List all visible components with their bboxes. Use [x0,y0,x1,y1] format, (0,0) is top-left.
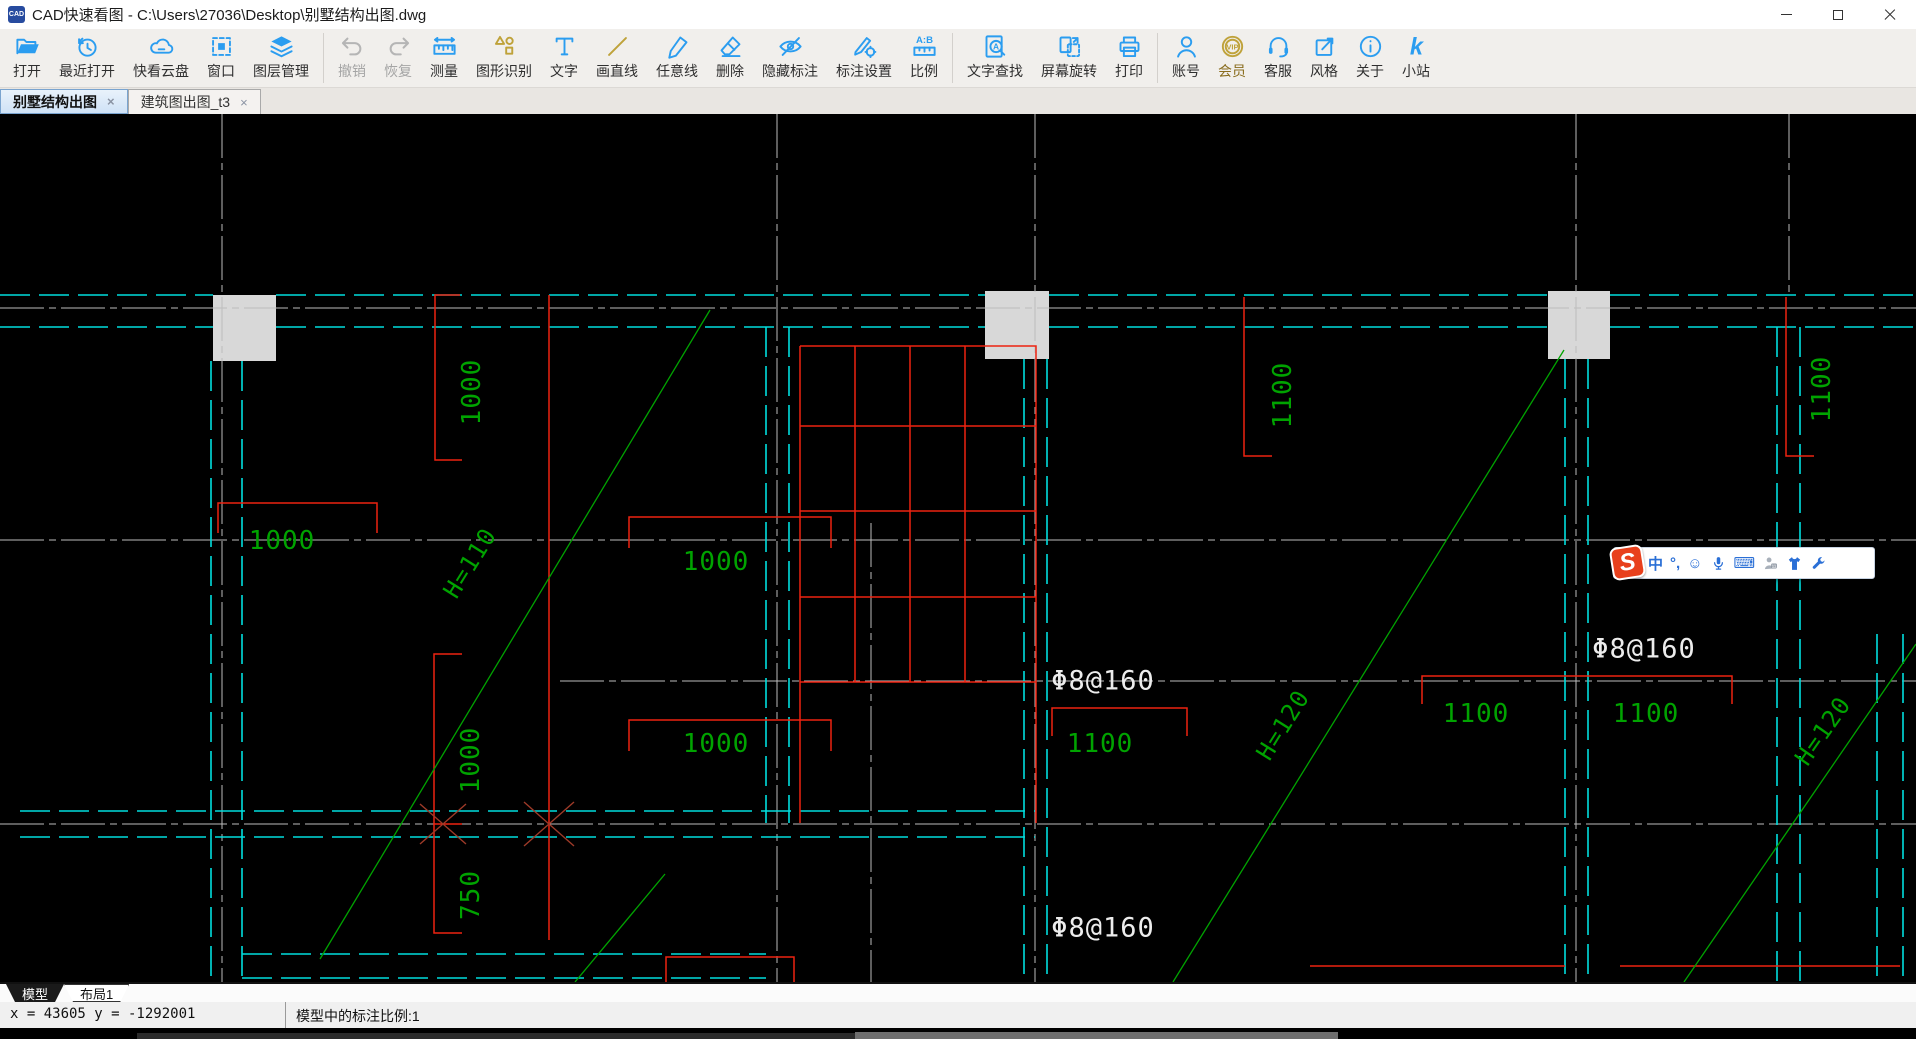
eye-slash-icon [777,33,804,60]
taskbar-segment [855,1032,1338,1039]
style-window-icon [1311,33,1338,60]
layer-manager-button[interactable]: 图层管理 [244,29,318,87]
toolbar-separator [952,33,953,83]
measure-button[interactable]: 测量 [421,29,467,87]
rebar-label: Φ8@160 [1051,666,1155,697]
annotation-scale-info: 模型中的标注比例:1 [296,1006,420,1026]
taskbar-edge [0,1028,1916,1039]
toolbar: 打开 最近打开 快看云盘 窗口 图层管理 撤销 恢复 测量 图形识别 文字 画直… [0,29,1916,88]
rebar-label: Φ8@160 [1592,634,1696,665]
ime-toolbar[interactable]: S 中 °, ☺ ⌨ 11 [1613,547,1875,579]
ime-punctuation-icon[interactable]: °, [1670,555,1680,572]
shapes-icon [491,33,518,60]
dim-label: 1100 [1067,729,1134,759]
draw-line-button[interactable]: 画直线 [587,29,647,87]
ime-microphone-icon[interactable] [1710,555,1727,572]
tab-close-icon[interactable]: × [107,94,115,109]
dim-label: 1100 [1807,356,1837,423]
recent-open-button[interactable]: 最近打开 [50,29,124,87]
height-label: H=110 [438,523,503,603]
hide-annotation-button[interactable]: 隐藏标注 [753,29,827,87]
maximize-icon [1833,10,1843,20]
sheet-tab-layout1[interactable]: 布局1 [64,984,129,1002]
taskbar-segment [137,1033,855,1039]
ime-handwriting-icon[interactable]: 11 [1762,555,1779,572]
ruler-icon [431,33,458,60]
ime-skin-icon[interactable] [1786,555,1803,572]
ime-keyboard-icon[interactable]: ⌨ [1734,554,1756,572]
support-button[interactable]: 客服 [1255,29,1301,87]
headset-icon [1265,33,1292,60]
text-tool-button[interactable]: 文字 [541,29,587,87]
style-button[interactable]: 风格 [1301,29,1347,87]
print-button[interactable]: 打印 [1106,29,1152,87]
svg-text:VIP: VIP [1226,42,1238,51]
dim-label: 1000 [457,359,487,426]
shape-recognition-button[interactable]: 图形识别 [467,29,541,87]
delete-button[interactable]: 删除 [707,29,753,87]
site-button[interactable]: k 小站 [1393,29,1439,87]
annotation-settings-button[interactable]: 标注设置 [827,29,901,87]
search-text-icon: A [982,33,1009,60]
height-label: H=120 [1251,685,1316,765]
toolbar-separator [323,33,324,83]
close-icon [1884,9,1896,21]
ime-emoji-icon[interactable]: ☺ [1687,555,1702,572]
maximize-button[interactable] [1812,0,1864,29]
layers-icon [268,33,295,60]
rotate-icon [1056,33,1083,60]
eraser-icon [717,33,744,60]
clock-history-icon [74,33,101,60]
svg-text:11: 11 [1772,563,1777,568]
dim-label: 1000 [683,547,750,577]
k-logo-icon: k [1403,33,1430,60]
redo-icon [385,33,412,60]
dim-label: 1100 [1268,362,1298,429]
window-title: CAD快速看图 - C:\Users\27036\Desktop\别墅结构出图.… [32,4,426,25]
minimize-icon [1781,14,1792,15]
selection-window-icon [208,33,235,60]
text-icon [551,33,578,60]
dim-label: 1100 [1443,699,1510,729]
status-divider [285,1002,286,1028]
dim-label: 750 [456,870,486,920]
scale-button[interactable]: A:B 比例 [901,29,947,87]
sheet-tab-bar: 模型 布局1 [0,982,1916,1002]
dim-label: 1000 [683,729,750,759]
minimize-button[interactable] [1760,0,1812,29]
tab-architecture-drawing[interactable]: 建筑图出图_t3 × [128,89,261,114]
title-bar: CAD CAD快速看图 - C:\Users\27036\Desktop\别墅结… [0,0,1916,29]
dim-label: 1000 [249,526,316,556]
about-button[interactable]: 关于 [1347,29,1393,87]
tab-structure-drawing[interactable]: 别墅结构出图 × [0,89,128,114]
undo-button[interactable]: 撤销 [329,29,375,87]
person-icon [1173,33,1200,60]
scale-ruler-icon: A:B [911,33,938,60]
svg-text:k: k [1409,34,1424,60]
redo-button[interactable]: 恢复 [375,29,421,87]
app-icon: CAD [8,6,25,23]
dim-label: 1100 [1613,699,1680,729]
ime-settings-wrench-icon[interactable] [1810,555,1827,572]
status-bar: x = 43605 y = -1292001 模型中的标注比例:1 [0,1002,1916,1028]
text-search-button[interactable]: A 文字查找 [958,29,1032,87]
info-icon [1357,33,1384,60]
line-icon [604,33,631,60]
dim-label: 1000 [456,727,486,794]
cursor-coordinates: x = 43605 y = -1292001 [10,1006,195,1022]
vip-member-button[interactable]: VIP 会员 [1209,29,1255,87]
pen-gear-icon [851,33,878,60]
free-line-button[interactable]: 任意线 [647,29,707,87]
document-tab-bar: 别墅结构出图 × 建筑图出图_t3 × [0,88,1916,114]
rebar-label: Φ8@160 [1051,913,1155,944]
svg-text:A: A [993,41,999,51]
svg-text:A:B: A:B [916,35,933,46]
open-button[interactable]: 打开 [4,29,50,87]
screen-rotate-button[interactable]: 屏幕旋转 [1032,29,1106,87]
pen-icon [664,33,691,60]
ime-chinese-mode-icon[interactable]: 中 [1648,553,1663,574]
vip-badge-icon: VIP [1219,33,1246,60]
printer-icon [1116,33,1143,60]
sheet-tab-model[interactable]: 模型 [6,984,64,1002]
cloud-icon [148,33,175,60]
toolbar-separator [1157,33,1158,83]
window-button[interactable]: 窗口 [198,29,244,87]
close-button[interactable] [1864,0,1916,29]
undo-icon [339,33,366,60]
sogou-logo-icon[interactable]: S [1609,544,1647,582]
tab-close-icon[interactable]: × [240,95,248,110]
cloud-drive-button[interactable]: 快看云盘 [124,29,198,87]
folder-open-icon [14,33,41,60]
height-label: H=120 [1789,691,1856,770]
tab-label: 建筑图出图_t3 [141,92,230,112]
account-button[interactable]: 账号 [1163,29,1209,87]
tab-label: 别墅结构出图 [13,92,97,112]
